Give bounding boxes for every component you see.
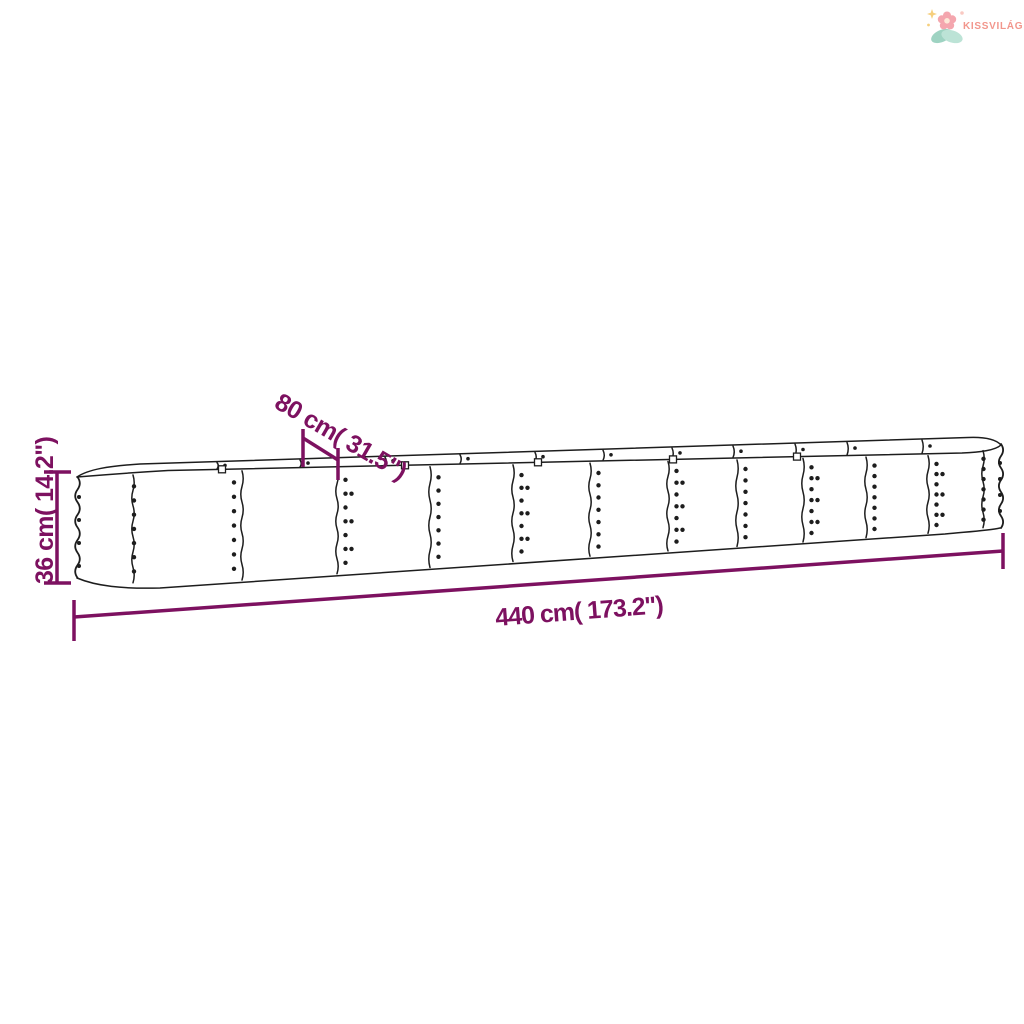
- rivet-dot: [674, 504, 678, 508]
- rivet-dot: [132, 555, 136, 559]
- rivet-dot: [809, 509, 813, 513]
- rivet-dot: [934, 513, 938, 517]
- rivet-dot: [343, 478, 347, 482]
- rivet-dot: [519, 524, 523, 528]
- corrugated-edge-right: [999, 444, 1003, 528]
- rivet-dot: [343, 561, 347, 565]
- rivet-dot: [928, 444, 932, 448]
- rivet-dot: [934, 472, 938, 476]
- rivet-dot: [132, 541, 136, 545]
- rivet-dot: [934, 523, 938, 527]
- flower-icon: [927, 9, 964, 46]
- rivet-dot: [77, 495, 81, 499]
- rivet-dot: [674, 481, 678, 485]
- rivet-dot: [998, 509, 1002, 513]
- rivet-dot: [743, 467, 747, 471]
- sparkle-icon: [927, 9, 937, 19]
- rivet-dot: [743, 490, 747, 494]
- rivet-dot: [674, 528, 678, 532]
- rivet-dot: [872, 463, 876, 467]
- rivet-dot: [132, 513, 136, 517]
- rivet-dot: [77, 518, 81, 522]
- rivet-dot: [743, 535, 747, 539]
- rivet-dot: [809, 498, 813, 502]
- rim-clip: [794, 453, 801, 460]
- rivet-dot: [436, 555, 440, 559]
- rivet-dot: [998, 461, 1002, 465]
- rivet-dot: [436, 488, 440, 492]
- rivet-dot: [343, 533, 347, 537]
- height-dimension-label: 36 cm( 14.2"): [31, 437, 59, 584]
- rivet-dot: [436, 541, 440, 545]
- rivet-dot: [349, 547, 353, 551]
- corrugated-edge-left: [75, 477, 80, 578]
- rivet-dot: [743, 524, 747, 528]
- rim-clip: [535, 459, 542, 466]
- rim-clip: [670, 456, 677, 463]
- rivet-dot: [853, 446, 857, 450]
- panel-seam: [865, 457, 867, 537]
- rivet-dot: [743, 501, 747, 505]
- rivet-dot: [232, 567, 236, 571]
- rivet-dot: [680, 481, 684, 485]
- rivet-dot: [343, 547, 347, 551]
- rim-seam: [847, 442, 848, 455]
- rivet-dot: [815, 498, 819, 502]
- rim-clip: [219, 466, 226, 473]
- rivet-dot: [596, 520, 600, 524]
- brand-logo: KISSVILÁG: [927, 9, 1023, 46]
- rivet-dot: [998, 493, 1002, 497]
- rivet-dot: [132, 527, 136, 531]
- rivet-dot: [674, 516, 678, 520]
- rivet-dot: [343, 492, 347, 496]
- rivet-dot: [306, 461, 310, 465]
- rivet-dot: [466, 457, 470, 461]
- rivet-dot: [934, 482, 938, 486]
- rivet-dot: [934, 492, 938, 496]
- rivet-dot: [674, 539, 678, 543]
- rivet-dot: [519, 537, 523, 541]
- rivet-dot: [981, 507, 985, 511]
- panel-seam: [336, 469, 338, 574]
- rivet-dot: [981, 487, 985, 491]
- rivet-dot: [343, 505, 347, 509]
- planter-bottom-line: [77, 528, 1000, 588]
- rivet-dot: [436, 502, 440, 506]
- rivet-dot: [232, 480, 236, 484]
- rivet-dot: [525, 511, 529, 515]
- rivet-dot: [998, 477, 1002, 481]
- rivet-dot: [872, 527, 876, 531]
- length-dimension-label: 440 cm( 173.2"): [494, 591, 664, 632]
- rivet-dot: [809, 476, 813, 480]
- rivet-dot: [872, 506, 876, 510]
- rivet-dot: [981, 497, 985, 501]
- rim-seam: [300, 460, 301, 467]
- rim-seam: [922, 440, 923, 453]
- panel-seam: [927, 456, 929, 534]
- garden-bed-diagram: 80 cm( 31.5") 36 cm( 14.2") 440 cm( 173.…: [0, 0, 1024, 1024]
- rivet-dot: [940, 492, 944, 496]
- rivet-dot: [132, 484, 136, 488]
- panel-seam: [512, 465, 514, 562]
- panel-seam: [736, 460, 738, 546]
- rivet-dot: [232, 552, 236, 556]
- rivet-dot: [525, 486, 529, 490]
- rivet-dot: [232, 509, 236, 513]
- rivet-dot: [815, 520, 819, 524]
- rivet-dot: [743, 512, 747, 516]
- rivet-dot: [809, 520, 813, 524]
- rivet-dot: [940, 472, 944, 476]
- rivet-dot: [809, 531, 813, 535]
- rivet-dot: [349, 519, 353, 523]
- rivet-dot: [77, 564, 81, 568]
- rivet-dot: [934, 462, 938, 466]
- product-dimension-image: 80 cm( 31.5") 36 cm( 14.2") 440 cm( 173.…: [0, 0, 1024, 1024]
- rim-seam: [460, 455, 461, 464]
- rivet-dot: [232, 495, 236, 499]
- rivet-dot: [872, 474, 876, 478]
- rivet-dot: [801, 448, 805, 452]
- rivet-dot: [809, 465, 813, 469]
- rivet-dot: [343, 519, 347, 523]
- rivet-dot: [872, 516, 876, 520]
- rivet-dot: [132, 498, 136, 502]
- rim-seam: [603, 450, 604, 460]
- rivet-dot: [680, 528, 684, 532]
- rim-outer-top-line: [77, 437, 1001, 477]
- panel-seam: [589, 463, 591, 556]
- rivet-dot: [981, 518, 985, 522]
- rivet-dot: [609, 453, 613, 457]
- rivet-dot: [436, 475, 440, 479]
- rivet-dot: [232, 538, 236, 542]
- rivet-dot: [678, 451, 682, 455]
- rivet-dot: [77, 541, 81, 545]
- rivet-dot: [809, 487, 813, 491]
- rim-seam: [733, 446, 734, 458]
- panel-seam: [241, 471, 243, 580]
- rivet-dot: [981, 457, 985, 461]
- rivet-dot: [872, 485, 876, 489]
- rivet-dot: [680, 504, 684, 508]
- rivet-dot: [525, 537, 529, 541]
- rivet-dot: [940, 513, 944, 517]
- rivet-dot: [674, 469, 678, 473]
- rivet-dot: [436, 515, 440, 519]
- panel-seam: [667, 461, 669, 550]
- rivet-dot: [981, 467, 985, 471]
- rivet-dot: [872, 495, 876, 499]
- rivet-dot: [596, 532, 600, 536]
- rivet-dot: [519, 511, 523, 515]
- rivet-dot: [739, 449, 743, 453]
- rivet-dot: [596, 495, 600, 499]
- rivet-dot: [436, 528, 440, 532]
- width-dimension-label: 80 cm( 31.5"): [270, 388, 412, 486]
- rivet-dot: [232, 523, 236, 527]
- rivet-dot: [519, 498, 523, 502]
- rivet-dot: [674, 492, 678, 496]
- rivet-dot: [596, 471, 600, 475]
- rivet-dot: [349, 492, 353, 496]
- rivet-dot: [519, 486, 523, 490]
- rivet-dot: [596, 544, 600, 548]
- rivet-dot: [519, 473, 523, 477]
- rivet-dot: [815, 476, 819, 480]
- rivet-dot: [596, 508, 600, 512]
- rivet-dot: [519, 549, 523, 553]
- rivet-dot: [132, 569, 136, 573]
- rivet-dot: [743, 478, 747, 482]
- rivet-dot: [541, 455, 545, 459]
- panel-seam: [429, 467, 431, 568]
- rivet-dot: [596, 483, 600, 487]
- rivet-dot: [981, 477, 985, 481]
- panel-seam: [802, 459, 804, 543]
- rivet-dot: [934, 502, 938, 506]
- brand-name: KISSVILÁG: [963, 19, 1023, 32]
